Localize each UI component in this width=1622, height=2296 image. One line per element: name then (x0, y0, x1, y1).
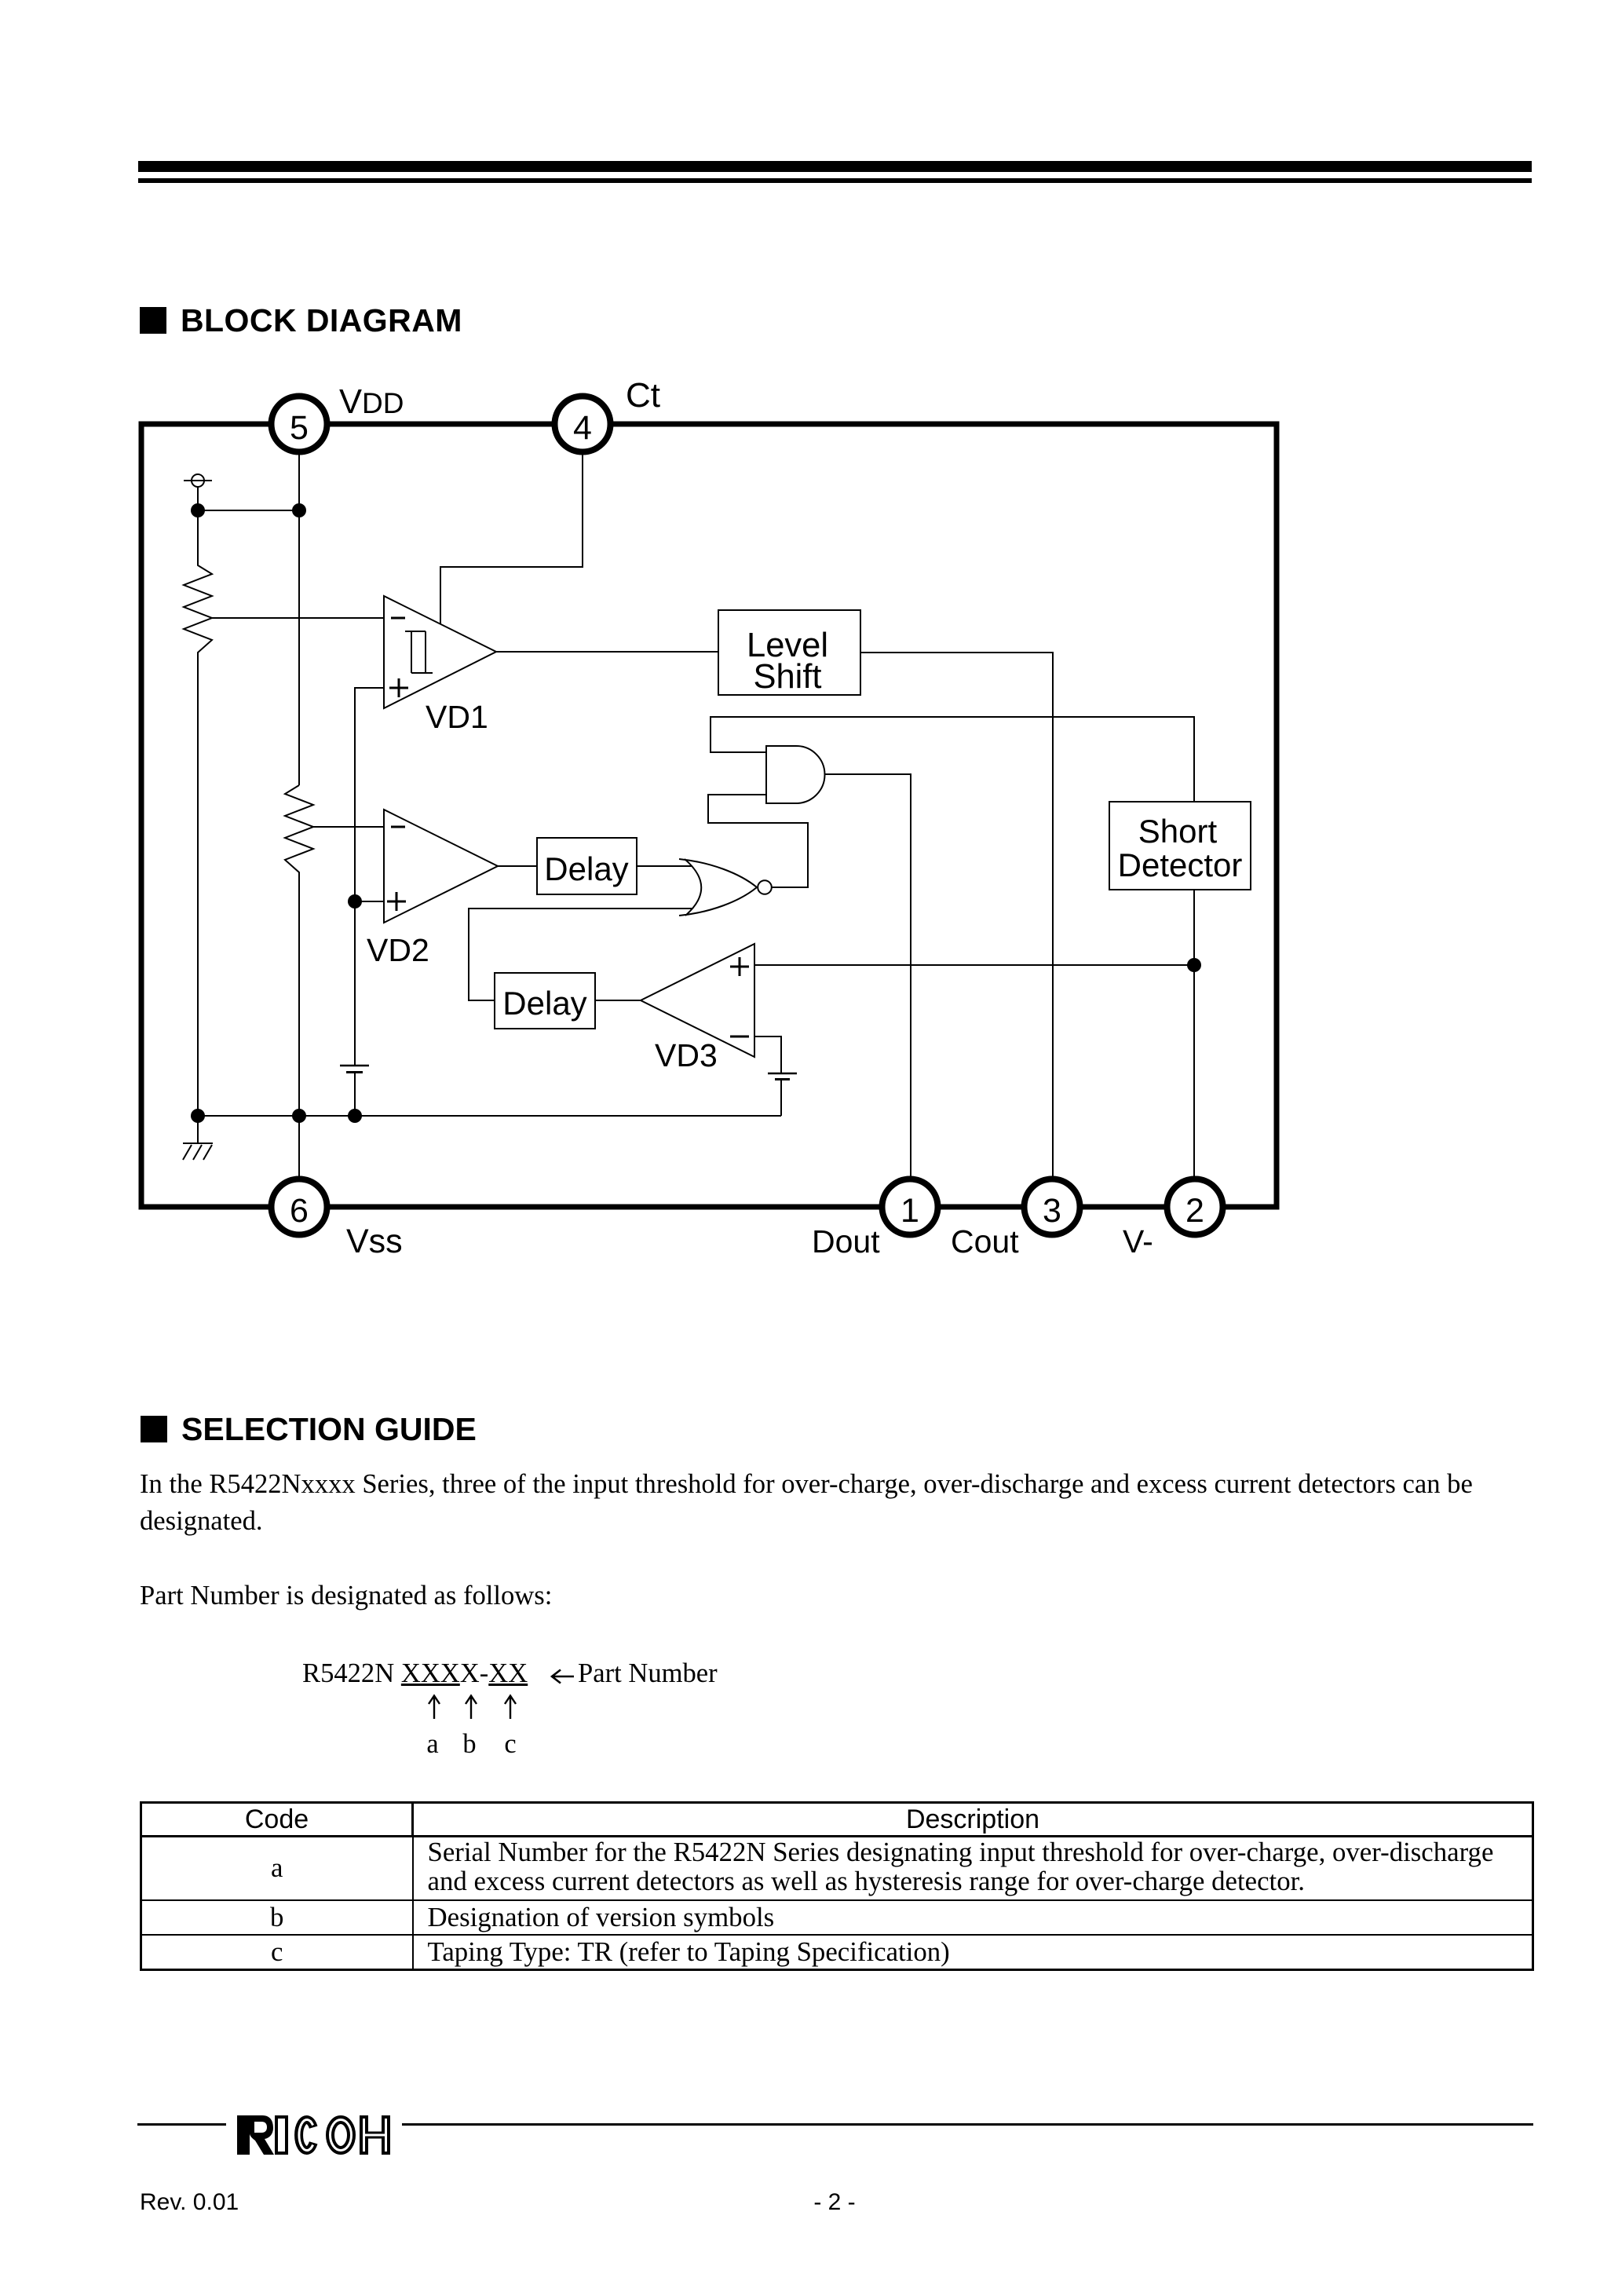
svg-text:Shift: Shift (753, 658, 821, 696)
svg-text:3: 3 (1043, 1192, 1061, 1230)
svg-text:5: 5 (290, 409, 309, 447)
svg-text:2: 2 (1185, 1192, 1204, 1230)
svg-text:VD1: VD1 (426, 699, 488, 735)
svg-text:Dout: Dout (812, 1223, 880, 1260)
svg-text:V-: V- (1123, 1223, 1153, 1260)
svg-text:VDD: VDD (339, 383, 404, 421)
svg-text:Delay: Delay (544, 850, 628, 887)
svg-text:Vss: Vss (346, 1223, 403, 1260)
svg-text:VD3: VD3 (655, 1037, 718, 1073)
svg-text:Cout: Cout (951, 1223, 1019, 1260)
svg-text:VD2: VD2 (367, 932, 429, 968)
svg-text:1: 1 (901, 1192, 919, 1230)
svg-text:4: 4 (573, 409, 592, 447)
svg-text:Delay: Delay (502, 985, 586, 1022)
svg-text:Ct: Ct (626, 376, 660, 415)
svg-text:Detector: Detector (1118, 846, 1243, 883)
svg-text:Short: Short (1138, 813, 1218, 850)
svg-text:6: 6 (290, 1192, 309, 1230)
